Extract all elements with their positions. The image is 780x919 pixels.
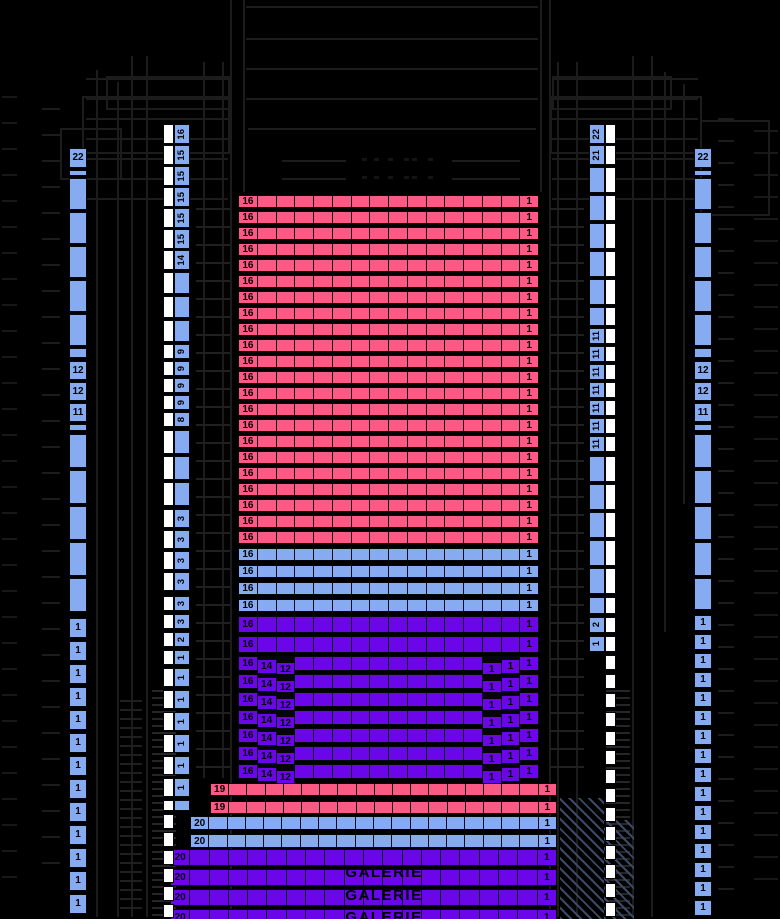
seat[interactable] <box>502 404 521 415</box>
seat[interactable] <box>464 420 483 431</box>
seat[interactable] <box>352 583 371 594</box>
seat[interactable] <box>520 784 538 795</box>
seat[interactable] <box>295 420 314 431</box>
seat[interactable] <box>314 260 333 271</box>
seat[interactable] <box>258 292 277 303</box>
seat[interactable] <box>357 802 375 813</box>
seat[interactable] <box>277 532 296 543</box>
seat[interactable] <box>277 276 296 287</box>
seat[interactable] <box>427 747 446 760</box>
seat[interactable] <box>295 212 314 223</box>
side-seat[interactable] <box>589 223 605 249</box>
seat[interactable] <box>295 468 314 479</box>
side-seat[interactable]: 1 <box>694 634 712 650</box>
seat[interactable] <box>445 196 464 207</box>
seat[interactable] <box>427 276 446 287</box>
row-label[interactable]: 16 <box>239 747 258 760</box>
seat[interactable] <box>314 212 333 223</box>
seat[interactable] <box>408 356 427 367</box>
seat[interactable] <box>352 388 371 399</box>
side-seat[interactable]: 1 <box>69 802 87 822</box>
seat[interactable] <box>502 420 521 431</box>
seat[interactable] <box>447 835 465 847</box>
seat[interactable] <box>338 784 356 795</box>
row-label[interactable]: 1 <box>520 196 538 207</box>
side-seat[interactable]: 11 <box>589 418 605 434</box>
row-label[interactable]: 16 <box>239 308 258 319</box>
seat[interactable] <box>392 817 410 829</box>
seat[interactable] <box>258 468 277 479</box>
seat[interactable] <box>295 292 314 303</box>
seat[interactable] <box>295 356 314 367</box>
seat[interactable] <box>408 404 427 415</box>
seat[interactable] <box>352 452 371 463</box>
seat[interactable] <box>295 637 314 652</box>
side-seat[interactable] <box>69 246 87 278</box>
seat[interactable] <box>306 850 325 865</box>
row-label[interactable]: 1 <box>520 484 538 495</box>
seat[interactable] <box>408 583 427 594</box>
seat[interactable] <box>389 657 408 670</box>
seat[interactable] <box>277 600 296 611</box>
seat[interactable] <box>190 890 209 905</box>
seat[interactable] <box>295 566 314 577</box>
seat[interactable] <box>375 802 393 813</box>
seat[interactable] <box>445 765 464 778</box>
side-seat[interactable] <box>589 251 605 277</box>
seat[interactable] <box>229 870 248 885</box>
side-seat[interactable] <box>589 456 605 482</box>
row-label[interactable]: 1 <box>539 802 556 813</box>
seat[interactable] <box>370 729 389 742</box>
seat[interactable] <box>258 340 277 351</box>
seat[interactable] <box>277 340 296 351</box>
seat[interactable] <box>502 817 520 829</box>
seat[interactable] <box>411 817 429 829</box>
side-seat[interactable]: 1 <box>174 778 190 797</box>
row-label[interactable]: 1 <box>520 657 538 670</box>
seat[interactable] <box>295 340 314 351</box>
seat[interactable] <box>352 516 371 527</box>
seat[interactable] <box>445 549 464 560</box>
seat[interactable] <box>408 637 427 652</box>
row-label[interactable]: 16 <box>239 468 258 479</box>
seat[interactable] <box>295 276 314 287</box>
seat[interactable] <box>282 835 300 847</box>
seat[interactable] <box>258 583 277 594</box>
seat[interactable] <box>429 835 447 847</box>
side-seat[interactable] <box>694 246 712 278</box>
seat[interactable] <box>295 308 314 319</box>
seat[interactable] <box>483 484 502 495</box>
seat[interactable] <box>295 711 314 724</box>
row-label[interactable]: 16 <box>239 228 258 239</box>
seat[interactable] <box>408 516 427 527</box>
seat[interactable] <box>445 516 464 527</box>
seat[interactable] <box>389 388 408 399</box>
seat[interactable] <box>333 532 352 543</box>
seat[interactable] <box>427 340 446 351</box>
side-seat[interactable] <box>589 307 605 326</box>
side-seat[interactable] <box>589 167 605 193</box>
seat[interactable] <box>370 308 389 319</box>
seat[interactable] <box>333 729 352 742</box>
side-seat[interactable]: 1 <box>174 756 190 775</box>
seat[interactable] <box>483 516 502 527</box>
row-label[interactable]: 1 <box>520 617 538 632</box>
seat[interactable] <box>465 835 483 847</box>
seat[interactable] <box>427 693 446 706</box>
row-label[interactable]: 14 <box>258 714 277 727</box>
side-seat[interactable]: 3 <box>174 530 190 549</box>
seat[interactable] <box>352 340 371 351</box>
seat[interactable] <box>370 324 389 335</box>
seat[interactable] <box>277 228 296 239</box>
seat[interactable] <box>333 404 352 415</box>
seat[interactable] <box>427 549 446 560</box>
seat[interactable] <box>483 388 502 399</box>
seat[interactable] <box>258 372 277 383</box>
seat[interactable] <box>427 452 446 463</box>
seat[interactable] <box>370 617 389 632</box>
seat[interactable] <box>502 532 521 543</box>
seat[interactable] <box>464 340 483 351</box>
seat[interactable] <box>258 484 277 495</box>
side-seat[interactable]: 1 <box>69 848 87 868</box>
seat[interactable] <box>302 784 320 795</box>
seat[interactable] <box>389 196 408 207</box>
seat[interactable] <box>518 870 537 885</box>
seat[interactable] <box>314 228 333 239</box>
seat[interactable] <box>464 516 483 527</box>
row-label[interactable]: 16 <box>239 212 258 223</box>
seat[interactable] <box>370 693 389 706</box>
seat[interactable] <box>502 566 521 577</box>
seat[interactable] <box>389 276 408 287</box>
seat[interactable] <box>427 404 446 415</box>
seat[interactable] <box>370 244 389 255</box>
seat[interactable] <box>389 729 408 742</box>
seat[interactable] <box>333 228 352 239</box>
seat[interactable] <box>502 802 520 813</box>
seat[interactable] <box>209 817 227 829</box>
side-seat[interactable]: 11 <box>589 328 605 344</box>
row-label[interactable]: 14 <box>258 732 277 745</box>
row-label[interactable]: 16 <box>239 244 258 255</box>
seat[interactable] <box>464 404 483 415</box>
seat[interactable] <box>352 260 371 271</box>
seat[interactable] <box>429 802 447 813</box>
seat[interactable] <box>325 850 344 865</box>
seat[interactable] <box>352 675 371 688</box>
side-seat[interactable]: 1 <box>694 786 712 802</box>
seat[interactable] <box>258 324 277 335</box>
seat[interactable] <box>464 765 483 778</box>
seat[interactable] <box>314 765 333 778</box>
seat[interactable] <box>333 452 352 463</box>
row-label[interactable]: 19 <box>211 784 229 795</box>
side-seat[interactable]: 2 <box>589 617 605 633</box>
seat[interactable] <box>389 693 408 706</box>
seat[interactable] <box>427 324 446 335</box>
seat[interactable] <box>389 452 408 463</box>
side-seat[interactable] <box>694 314 712 346</box>
seat[interactable] <box>464 196 483 207</box>
seat[interactable] <box>352 532 371 543</box>
row-label[interactable]: 20 <box>191 835 209 847</box>
seat[interactable] <box>375 784 393 795</box>
seat[interactable] <box>427 765 446 778</box>
seat[interactable] <box>403 850 422 865</box>
seat[interactable] <box>408 340 427 351</box>
seat[interactable] <box>258 600 277 611</box>
side-seat[interactable]: 1 <box>69 641 87 661</box>
row-label[interactable]: 14 <box>258 678 277 691</box>
seat[interactable] <box>445 356 464 367</box>
seat[interactable] <box>445 657 464 670</box>
seat[interactable] <box>370 196 389 207</box>
seat[interactable] <box>502 356 521 367</box>
seat[interactable] <box>429 817 447 829</box>
side-seat[interactable]: 11 <box>589 382 605 398</box>
seat[interactable] <box>370 484 389 495</box>
seat[interactable] <box>464 637 483 652</box>
seat[interactable] <box>502 835 520 847</box>
seat[interactable] <box>352 747 371 760</box>
seat[interactable] <box>502 276 521 287</box>
row-label[interactable]: 16 <box>239 500 258 511</box>
seat[interactable] <box>370 356 389 367</box>
side-seat[interactable] <box>589 484 605 510</box>
seat[interactable] <box>277 324 296 335</box>
row-label[interactable]: 16 <box>239 196 258 207</box>
seat[interactable] <box>502 549 521 560</box>
seat[interactable] <box>370 516 389 527</box>
seat[interactable] <box>464 657 483 670</box>
side-seat[interactable] <box>694 506 712 540</box>
row-label[interactable]: 16 <box>239 356 258 367</box>
seat[interactable] <box>370 292 389 303</box>
seat[interactable] <box>314 583 333 594</box>
seat[interactable] <box>445 566 464 577</box>
row-label[interactable]: 1 <box>520 276 538 287</box>
row-label[interactable]: 1 <box>520 532 538 543</box>
side-seat[interactable] <box>694 348 712 358</box>
seat[interactable] <box>333 212 352 223</box>
seat[interactable] <box>277 484 296 495</box>
row-label[interactable]: 1 <box>520 711 538 724</box>
seat[interactable] <box>352 436 371 447</box>
seat[interactable] <box>352 549 371 560</box>
seat[interactable] <box>484 784 502 795</box>
seat[interactable] <box>389 324 408 335</box>
row-label[interactable]: 1 <box>520 356 538 367</box>
side-seat[interactable] <box>694 434 712 468</box>
seat[interactable] <box>229 890 248 905</box>
seat[interactable] <box>277 436 296 447</box>
side-seat[interactable]: 1 <box>694 653 712 669</box>
seat[interactable] <box>333 308 352 319</box>
side-seat[interactable] <box>69 314 87 346</box>
side-seat[interactable]: 15 <box>174 187 190 207</box>
seat[interactable] <box>518 910 537 919</box>
seat[interactable] <box>352 600 371 611</box>
side-seat[interactable] <box>174 296 190 318</box>
seat[interactable] <box>246 835 264 847</box>
seat[interactable] <box>502 196 521 207</box>
seat[interactable] <box>502 436 521 447</box>
seat[interactable] <box>258 532 277 543</box>
seat[interactable] <box>352 372 371 383</box>
seat[interactable] <box>314 372 333 383</box>
side-seat[interactable] <box>174 320 190 342</box>
seat[interactable] <box>466 802 484 813</box>
seat[interactable] <box>445 212 464 223</box>
side-seat[interactable]: 1 <box>694 748 712 764</box>
row-label[interactable]: 16 <box>239 436 258 447</box>
row-label[interactable]: 16 <box>239 420 258 431</box>
seat[interactable] <box>464 276 483 287</box>
seat[interactable] <box>370 340 389 351</box>
side-seat[interactable]: 1 <box>69 618 87 638</box>
side-seat[interactable] <box>589 568 605 594</box>
seat[interactable] <box>464 324 483 335</box>
seat[interactable] <box>295 657 314 670</box>
seat[interactable] <box>389 532 408 543</box>
seat[interactable] <box>277 566 296 577</box>
row-label[interactable]: 1 <box>502 714 521 727</box>
seat[interactable] <box>277 212 296 223</box>
seat[interactable] <box>408 657 427 670</box>
seat[interactable] <box>427 308 446 319</box>
seat[interactable] <box>445 276 464 287</box>
seat[interactable] <box>502 637 521 652</box>
seat[interactable] <box>464 600 483 611</box>
row-label[interactable]: 1 <box>520 566 538 577</box>
side-seat[interactable] <box>69 424 87 431</box>
side-seat[interactable]: 1 <box>69 894 87 914</box>
seat[interactable] <box>392 835 410 847</box>
seat[interactable] <box>295 693 314 706</box>
seat[interactable] <box>314 637 333 652</box>
seat[interactable] <box>228 817 246 829</box>
seat[interactable] <box>352 468 371 479</box>
side-seat[interactable] <box>174 482 190 506</box>
seat[interactable] <box>370 532 389 543</box>
side-seat[interactable] <box>694 212 712 244</box>
seat[interactable] <box>411 802 429 813</box>
seat[interactable] <box>520 802 538 813</box>
seat[interactable] <box>408 765 427 778</box>
seat[interactable] <box>483 500 502 511</box>
seat[interactable] <box>333 693 352 706</box>
seat[interactable] <box>314 566 333 577</box>
seat[interactable] <box>445 228 464 239</box>
seat[interactable] <box>408 276 427 287</box>
seat[interactable] <box>333 196 352 207</box>
row-label[interactable]: 16 <box>239 292 258 303</box>
seat[interactable] <box>277 420 296 431</box>
seat[interactable] <box>370 675 389 688</box>
seat[interactable] <box>301 835 319 847</box>
seat[interactable] <box>389 420 408 431</box>
seat[interactable] <box>333 388 352 399</box>
side-seat[interactable]: 2 <box>174 632 190 647</box>
seat[interactable] <box>338 802 356 813</box>
row-label[interactable]: 1 <box>520 500 538 511</box>
seat[interactable] <box>389 566 408 577</box>
seat[interactable] <box>389 583 408 594</box>
seat[interactable] <box>464 244 483 255</box>
seat[interactable] <box>320 802 338 813</box>
row-label[interactable]: 16 <box>239 675 258 688</box>
seat[interactable] <box>370 468 389 479</box>
side-seat[interactable]: 3 <box>174 614 190 629</box>
row-label[interactable]: 1 <box>520 260 538 271</box>
seat[interactable] <box>427 583 446 594</box>
seat[interactable] <box>408 549 427 560</box>
side-seat[interactable] <box>69 434 87 468</box>
seat[interactable] <box>393 802 411 813</box>
seat[interactable] <box>229 802 247 813</box>
seat[interactable] <box>408 196 427 207</box>
seat[interactable] <box>483 212 502 223</box>
seat[interactable] <box>295 436 314 447</box>
row-label[interactable]: 14 <box>258 660 277 673</box>
side-seat[interactable] <box>174 430 190 454</box>
side-seat[interactable]: 1 <box>694 805 712 821</box>
row-label[interactable]: 16 <box>239 260 258 271</box>
side-seat[interactable]: 15 <box>174 166 190 186</box>
side-seat[interactable]: 21 <box>589 145 605 165</box>
seat[interactable] <box>320 784 338 795</box>
seat[interactable] <box>389 212 408 223</box>
seat[interactable] <box>427 196 446 207</box>
seat[interactable] <box>483 600 502 611</box>
seat[interactable] <box>333 516 352 527</box>
seat[interactable] <box>502 784 520 795</box>
seat[interactable] <box>314 484 333 495</box>
seat[interactable] <box>445 675 464 688</box>
row-label[interactable]: 16 <box>239 276 258 287</box>
side-seat[interactable] <box>69 542 87 576</box>
side-seat[interactable] <box>589 512 605 538</box>
seat[interactable] <box>370 212 389 223</box>
seat[interactable] <box>483 583 502 594</box>
seat[interactable] <box>229 784 247 795</box>
seat[interactable] <box>445 404 464 415</box>
seat[interactable] <box>247 802 265 813</box>
seat[interactable] <box>333 747 352 760</box>
seat[interactable] <box>295 260 314 271</box>
seat[interactable] <box>408 388 427 399</box>
side-seat[interactable] <box>694 424 712 431</box>
seat[interactable] <box>427 436 446 447</box>
seat[interactable] <box>408 292 427 303</box>
seat[interactable] <box>408 500 427 511</box>
side-seat[interactable]: 12 <box>694 382 712 401</box>
seat[interactable] <box>464 500 483 511</box>
seat[interactable] <box>209 835 227 847</box>
seat[interactable] <box>210 870 229 885</box>
seat[interactable] <box>333 549 352 560</box>
side-seat[interactable]: 1 <box>694 729 712 745</box>
seat[interactable] <box>460 850 479 865</box>
side-seat[interactable]: 1 <box>69 710 87 730</box>
seat[interactable] <box>352 711 371 724</box>
seat[interactable] <box>258 356 277 367</box>
seat[interactable] <box>314 500 333 511</box>
